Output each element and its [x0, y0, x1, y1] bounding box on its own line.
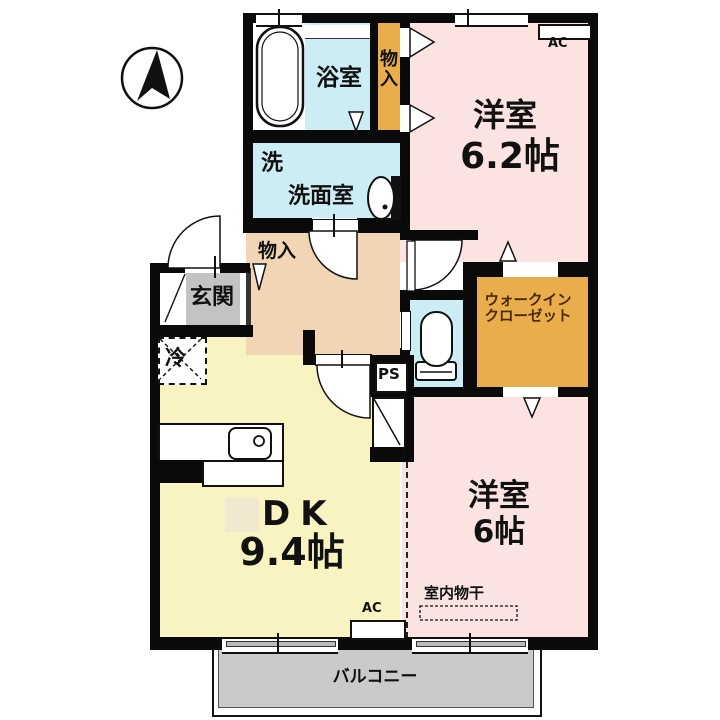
- ac-label-bottom: AC: [362, 602, 382, 617]
- room1-size-label: 6.2帖: [430, 137, 590, 177]
- washroom-label: 洗面室: [288, 185, 354, 210]
- closet-opening-icon: [524, 398, 540, 417]
- door-arc: [168, 216, 220, 268]
- pipe-space-label: PS: [378, 366, 400, 383]
- faucet-icon: [254, 436, 264, 446]
- bath-door-icon: [349, 112, 363, 131]
- storage-top-label: 物 入: [378, 50, 400, 90]
- fold-door-icon: [410, 105, 434, 132]
- indoor-drying-label: 室内物干: [424, 585, 484, 602]
- entrance-label: 玄関: [190, 286, 234, 311]
- plan-symbols: [0, 0, 720, 720]
- north-arrow-icon: [122, 48, 182, 108]
- washer-label: 洗: [261, 152, 283, 177]
- ac-label-top: AC: [548, 37, 568, 52]
- door-arc: [309, 231, 357, 279]
- balcony-label: バルコニー: [300, 668, 450, 687]
- entrance-door-line: [165, 274, 185, 322]
- dk-size-label: 9.4帖: [212, 531, 372, 574]
- vanity-sink-icon: [368, 176, 401, 220]
- storage-door-icon: [253, 264, 266, 290]
- toilet-icon: [416, 312, 456, 380]
- closet-opening-icon: [500, 242, 516, 261]
- dk-name-label: DK: [262, 495, 337, 533]
- walk-in-closet-label: ウォークイン クローゼット: [470, 293, 586, 325]
- indoor-drying-bar: [420, 606, 517, 620]
- floor-plan: 浴室 物 入 洗 洗面室 物入 玄関 冷 PS ウォークイン クローゼット 洋室…: [0, 0, 720, 720]
- door-leaf: [407, 241, 415, 291]
- room2-size-label: 6帖: [446, 515, 552, 550]
- shaft-diagonal: [374, 399, 400, 445]
- door-arc: [317, 365, 370, 418]
- storage-hall-label: 物入: [258, 241, 296, 262]
- room1-name-label: 洋室: [452, 98, 558, 134]
- room2-name-label: 洋室: [446, 479, 552, 514]
- fold-door-icon: [410, 28, 434, 57]
- bathtub-icon: [257, 27, 303, 126]
- door-arc: [412, 240, 462, 290]
- bathroom-label: 浴室: [308, 66, 370, 92]
- fridge-label: 冷: [165, 347, 186, 371]
